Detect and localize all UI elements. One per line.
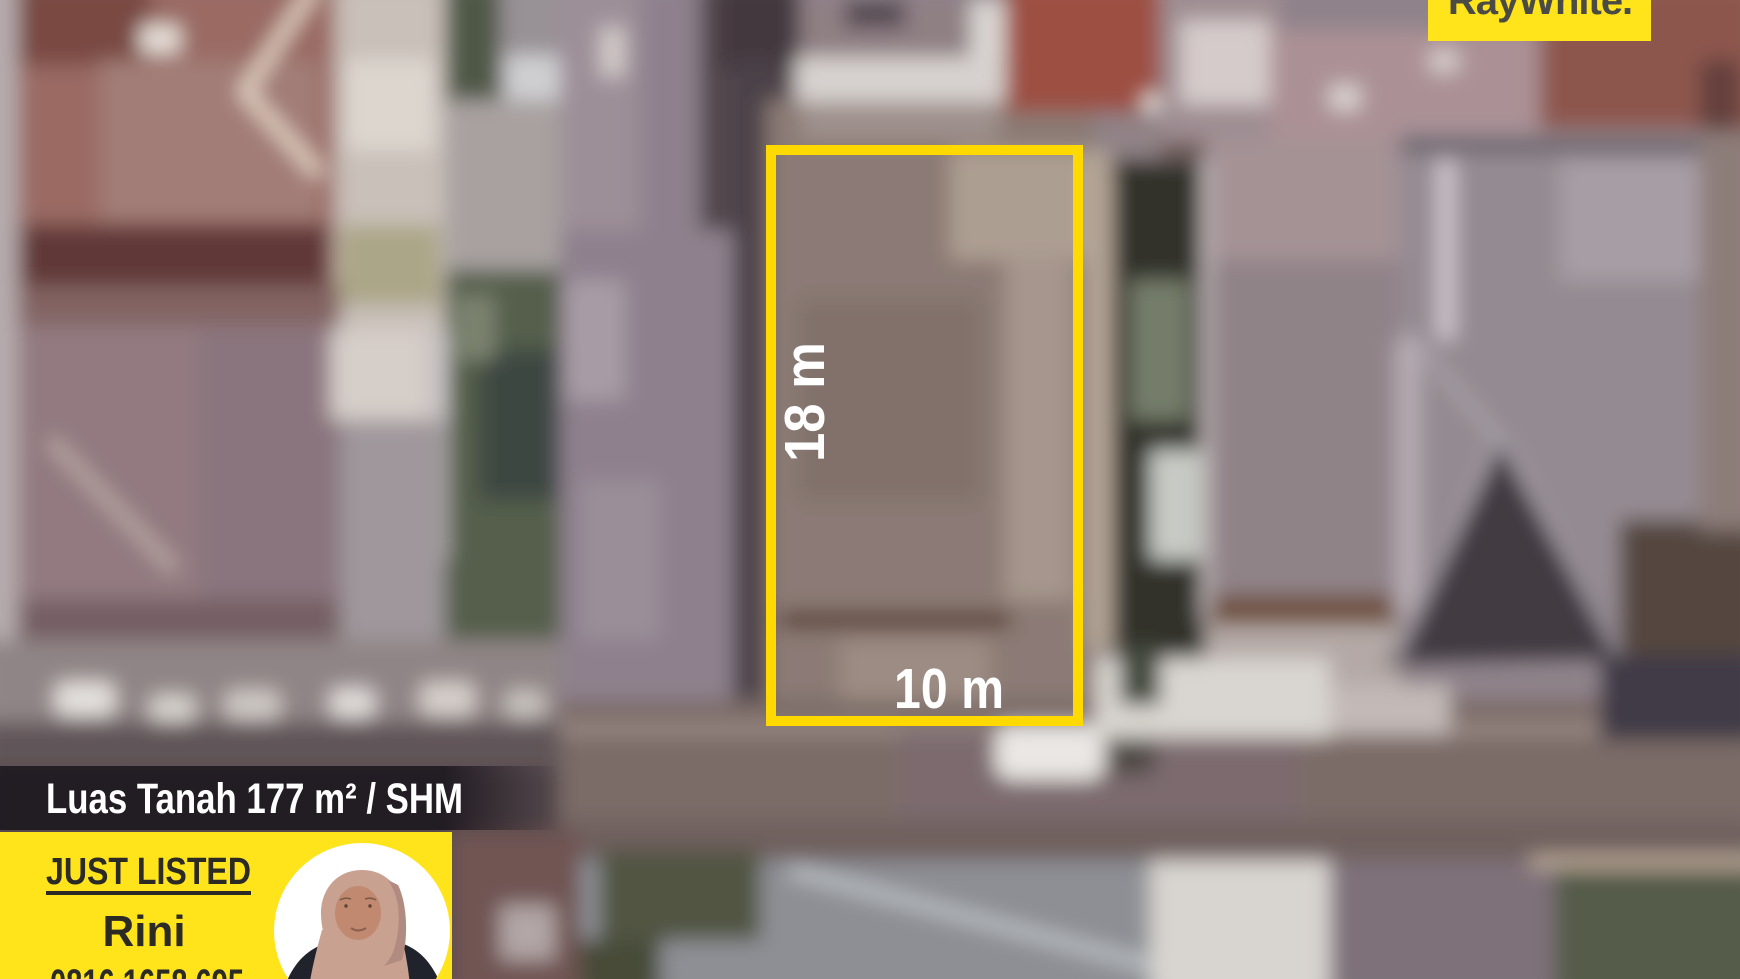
svg-text:JUST LISTED: JUST LISTED: [46, 851, 251, 893]
svg-text:Luas Tanah 177 m² / SHM: Luas Tanah 177 m² / SHM: [46, 775, 463, 823]
svg-text:RayWhite.: RayWhite.: [1448, 0, 1632, 23]
svg-text:Rini: Rini: [102, 907, 185, 956]
svg-text:18 m: 18 m: [773, 342, 837, 462]
svg-text:10 m: 10 m: [894, 657, 1004, 721]
svg-text:0816 1658 695: 0816 1658 695: [50, 962, 244, 979]
